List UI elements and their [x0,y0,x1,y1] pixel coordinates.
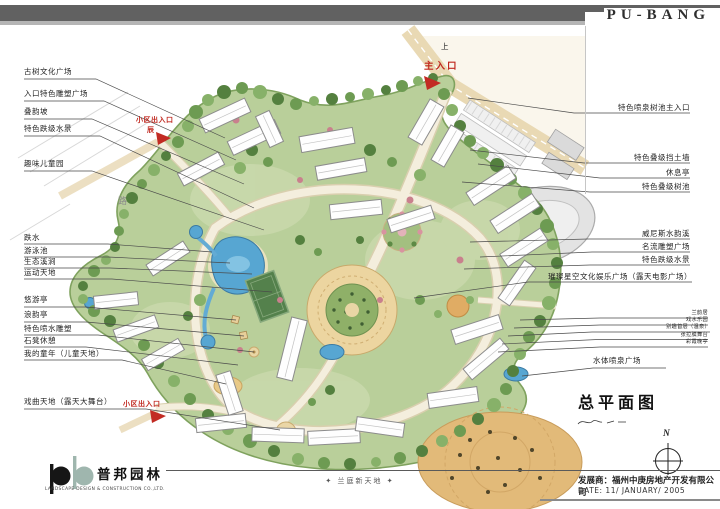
plan-callout: 璀璨星空文化娱乐广场（露天电影广场） [548,273,692,281]
plan-callout: 戏水乐园 [686,318,708,324]
plan-callout: 特色叠级树池 [642,183,690,191]
project-name: ✦ 兰庭新天地 ✦ [300,476,420,486]
plan-callout: 威尼斯水韵溪 [642,230,690,238]
plan-callout: 运动天地 [24,269,56,277]
header-accent-bar [0,21,585,25]
logo-english-name: LANDSCAPE DESIGN & CONSTRUCTION CO.,LTD. [45,487,165,492]
plan-callout: 休息亭 [666,169,690,177]
date-line: DATE: 11/ JANUARY/ 2005 [578,486,685,495]
plan-callout: 别趣首层（温泉） [666,325,710,331]
plan-callout: 叠韵坡 [24,108,48,116]
plan-callout: 入口特色雕塑广场 [24,90,88,98]
plan-callout: 特色喷水雕塑 [24,325,72,333]
road-label: 路 [118,198,127,208]
plan-callout: 石凳休憩 [24,337,56,345]
drawing-title: 总平面图 [578,389,658,413]
plan-callout: 彩霞晚亭 [686,340,708,346]
plan-callout: 我的童年（儿童天地） [24,350,104,358]
plan-callout: 特色跌级水景 [24,125,72,133]
plan-callout: 生态溪涧 [24,258,56,266]
plan-callout: 特色跌级水景 [642,256,690,264]
scale-mark [578,420,626,424]
district-entrance-label: 小区出入口 [123,401,161,409]
district-entrance-mark: 辰 [147,127,155,135]
titleblock-rule [540,499,720,501]
brand-title: PU-BANG [607,7,710,24]
logo-chinese-name: 普邦园林 [97,463,163,483]
right-rule [585,26,586,194]
plan-callout: 游泳池 [24,247,48,255]
plan-callout: 兰韵居 [692,311,708,317]
small-plaza [447,295,469,317]
plan-callout: 古树文化广场 [24,68,72,76]
plan-callout: 跌水 [24,234,40,242]
compass-n-label: N [663,429,670,439]
plan-callout: 戏曲天地（露天大舞台） [24,398,112,406]
header-notch [585,12,607,28]
presentation-board: PU-BANG 古树文化广场入口特色雕塑广场叠韵坡特色跌级水景趣味儿童园跌水游泳… [0,0,720,509]
plan-callout: 浪韵亭 [24,311,48,319]
main-entrance-label: 主入口 [424,62,459,72]
district-entrance-label: 小区出入口 [136,117,174,125]
plan-callout: 特色喷泉树池主入口 [618,104,690,112]
footer-rule [166,470,720,471]
plan-callout: 特色叠级挡土墙 [634,154,690,162]
site-plan-rendering [0,0,720,509]
plan-callout: 名流雕塑广场 [642,243,690,251]
road-direction-label: 上 [441,43,449,51]
plan-callout: 水体喷泉广场 [593,357,641,365]
plan-callout: 张拉膜舞台 [681,333,708,339]
central-plaza [307,265,397,355]
plan-callout: 悠游亭 [24,296,48,304]
plan-callout: 趣味儿童园 [24,160,64,168]
